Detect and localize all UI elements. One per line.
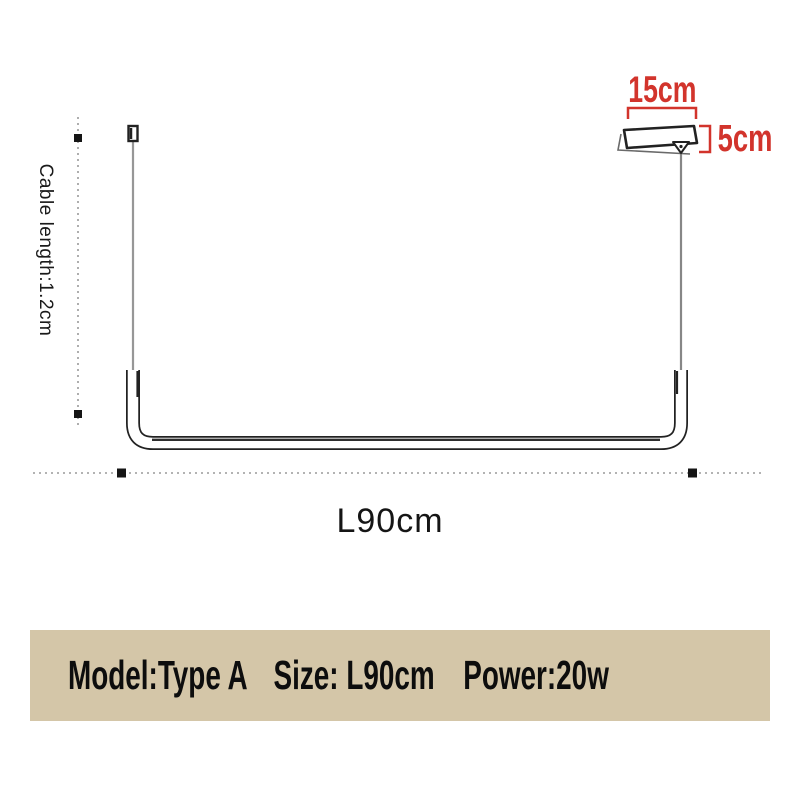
lamp-tube xyxy=(133,370,681,443)
canopy-height-value: 5cm xyxy=(718,120,773,158)
canopy-width-label: 15cm xyxy=(592,71,732,108)
fixture-length-label: L90cm xyxy=(290,502,490,541)
canopy-width-value: 15cm xyxy=(628,71,696,108)
spec-model: Model:Type A xyxy=(68,652,248,699)
suspension-cables xyxy=(133,141,681,372)
canopy-height-label: 5cm xyxy=(695,120,790,158)
product-dimension-image: 15cm 5cm Cable length:1.2cm L90cm Model:… xyxy=(0,0,790,790)
cable-length-label: Cable length:1.2cm xyxy=(32,80,56,420)
spec-banner-text: Model:Type A Size: L90cm Power:20w xyxy=(68,652,609,699)
spec-size: Size: L90cm xyxy=(274,652,435,699)
fixture-length-dimension-line xyxy=(33,469,763,478)
cable-length-dimension-line xyxy=(74,117,82,429)
left-cable-connector xyxy=(129,126,138,141)
spec-banner: Model:Type A Size: L90cm Power:20w xyxy=(30,630,770,721)
spec-power: Power:20w xyxy=(463,652,609,699)
ceiling-canopy xyxy=(618,126,697,154)
